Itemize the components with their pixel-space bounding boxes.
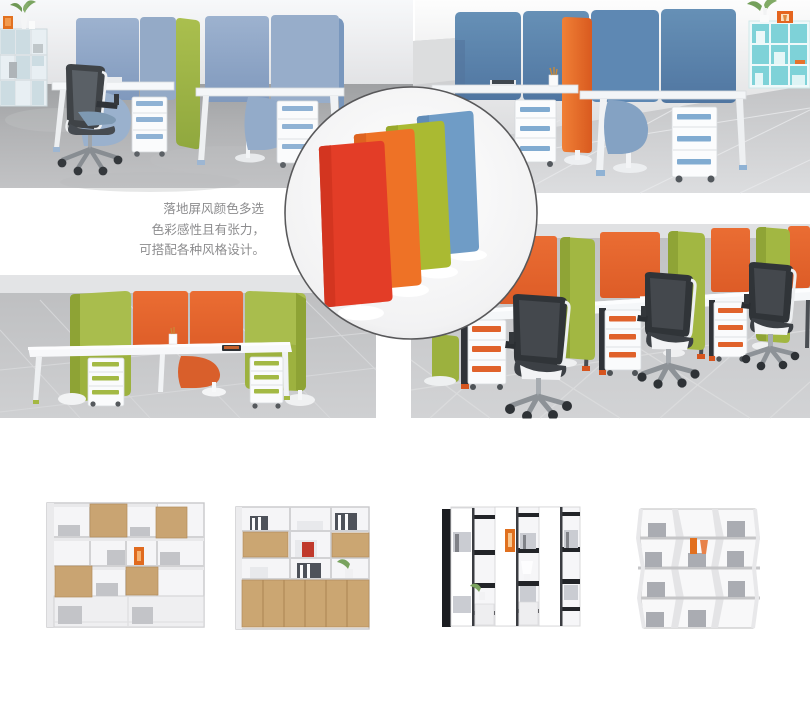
svg-text:色彩感性且有张力，: 色彩感性且有张力， [152, 222, 265, 237]
svg-text:落地屏风颜色多选: 落地屏风颜色多选 [163, 201, 264, 216]
svg-text:可搭配各种风格设计。: 可搭配各种风格设计。 [139, 242, 265, 257]
